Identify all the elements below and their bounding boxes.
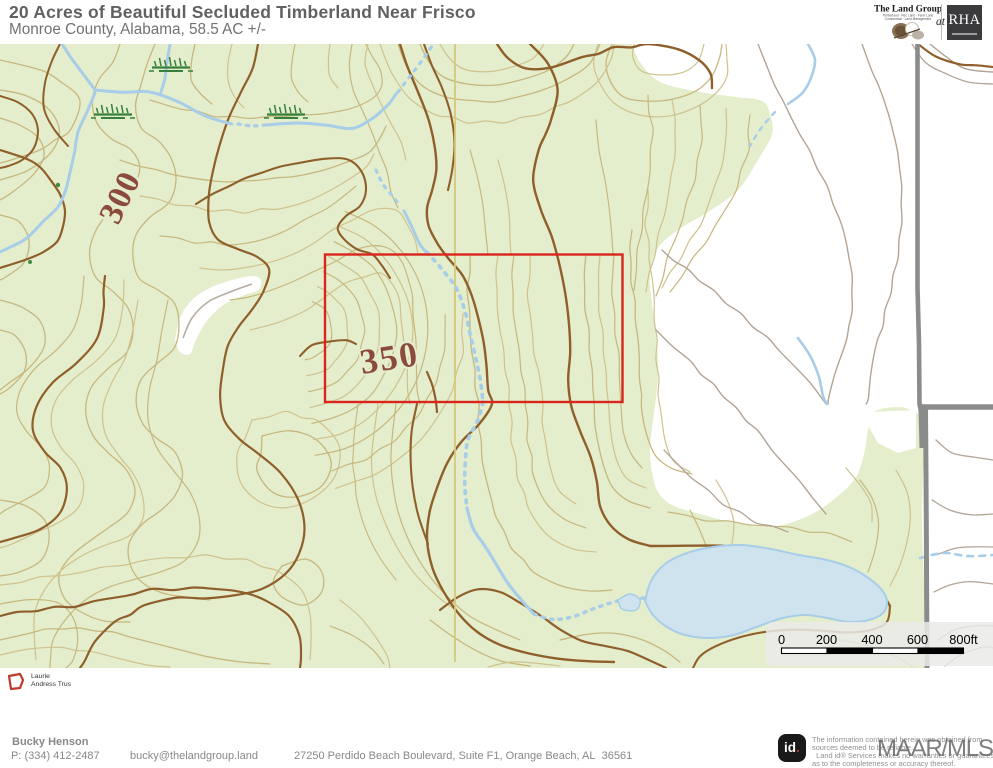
svg-text:200: 200 xyxy=(816,632,837,647)
svg-text:800ft: 800ft xyxy=(949,632,978,647)
svg-text:0: 0 xyxy=(778,632,785,647)
svg-text:600: 600 xyxy=(907,632,928,647)
svg-text:400: 400 xyxy=(861,632,882,647)
svg-text:Commercial · Land Management: Commercial · Land Management xyxy=(885,17,932,21)
